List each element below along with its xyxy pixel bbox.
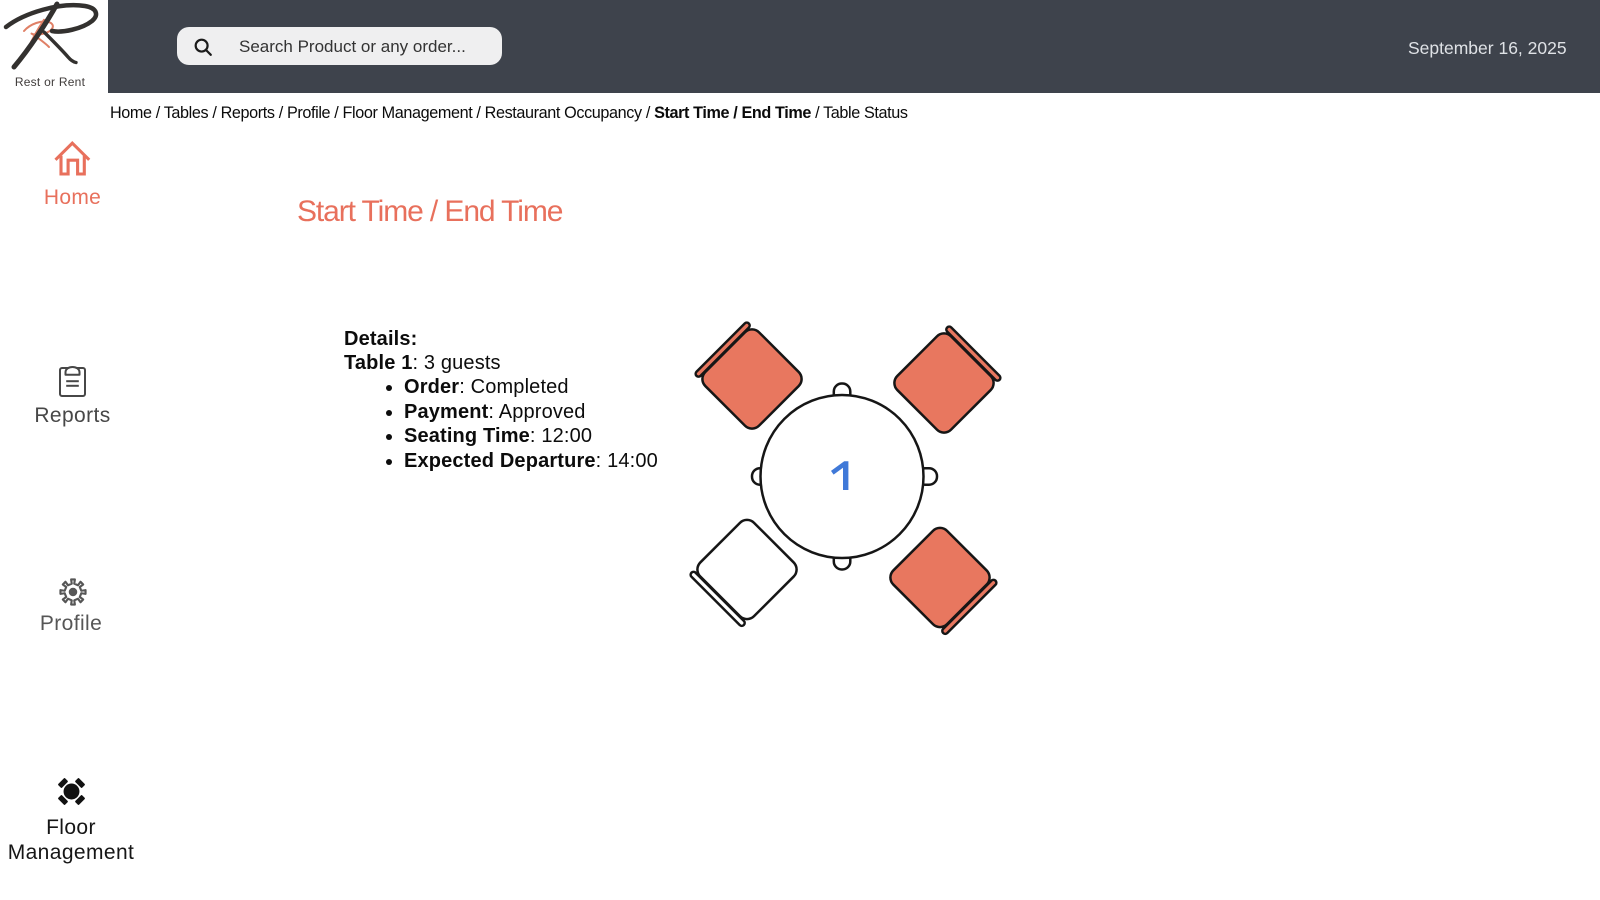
svg-text:Rest or Rent: Rest or Rent [15,75,86,89]
